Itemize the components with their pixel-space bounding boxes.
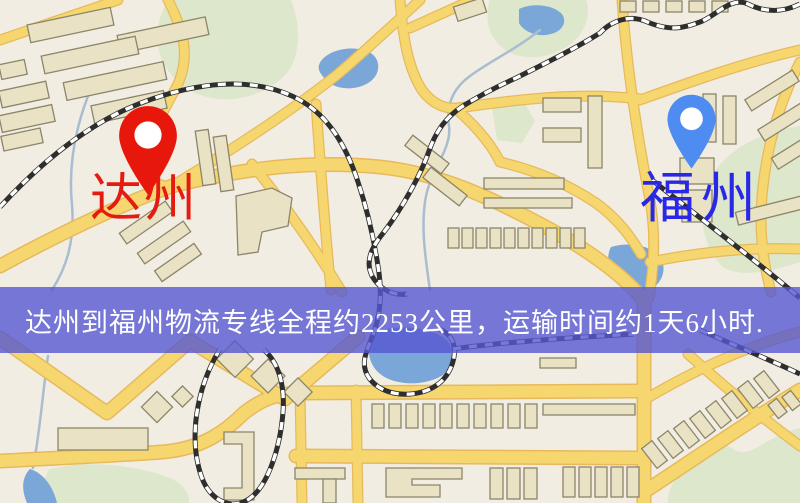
- map-canvas: [0, 0, 800, 503]
- banner-text: 达州到福州物流专线全程约2253公里，运输时间约1天6小时.: [0, 287, 800, 353]
- origin-city-label: 达州: [90, 174, 198, 226]
- route-info-banner: 达州到福州物流专线全程约2253公里，运输时间约1天6小时.: [0, 287, 800, 353]
- destination-city-label: 福州: [640, 171, 762, 226]
- logistics-route-map: 达州 福州 达州到福州物流专线全程约2253公里，运输时间约1天6小时.: [0, 0, 800, 503]
- destination-pin-icon: [664, 93, 719, 172]
